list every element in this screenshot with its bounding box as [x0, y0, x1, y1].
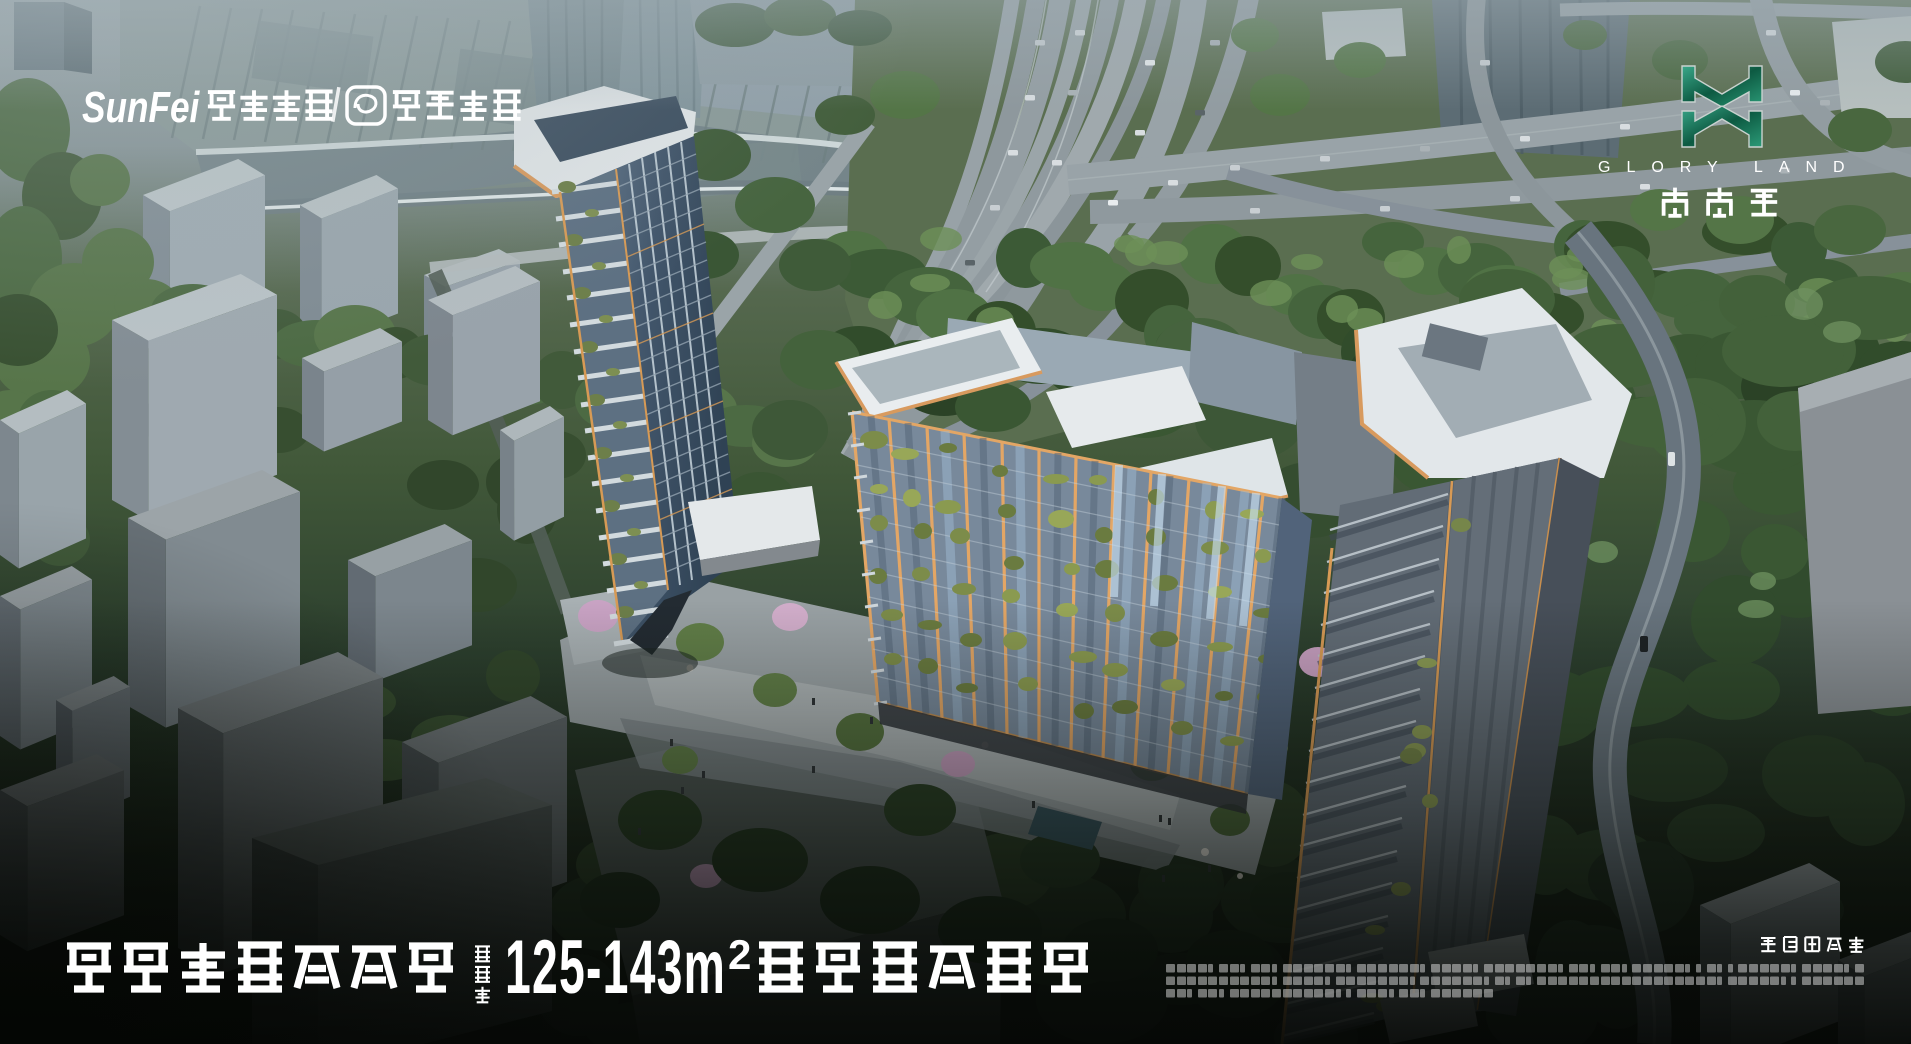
svg-text:GLORY LAND: GLORY LAND: [1598, 159, 1861, 176]
svg-text:SunFei: SunFei: [82, 83, 200, 132]
svg-text:2: 2: [728, 931, 751, 978]
svg-text:125-143m: 125-143m: [505, 925, 726, 1010]
